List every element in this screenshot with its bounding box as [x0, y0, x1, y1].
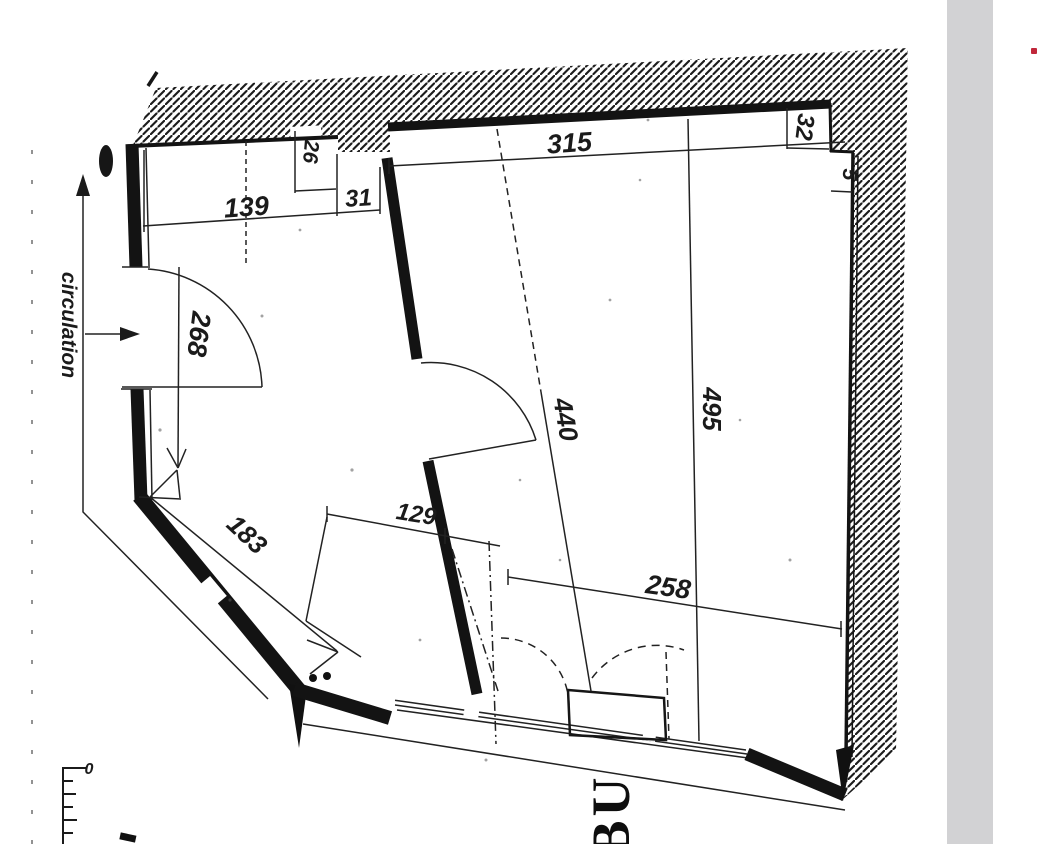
- scanner-gray-strip: [947, 0, 993, 844]
- dim-139-label: 139: [223, 190, 270, 223]
- dot-2: [323, 672, 331, 680]
- dim-268-label: 268: [181, 309, 216, 358]
- dim-495-label: 495: [697, 386, 727, 431]
- dim-5-label: 5: [837, 168, 861, 182]
- circulation-label: circulation: [57, 272, 80, 378]
- left-wall-upper: [132, 144, 136, 267]
- room-name-label: BU: [581, 773, 641, 844]
- dim-258-label: 258: [643, 569, 693, 605]
- scan-blob: [99, 145, 113, 177]
- dim-26-label: 26: [298, 138, 323, 165]
- red-mark: [1031, 48, 1037, 54]
- step-wall-vertical: [830, 103, 831, 152]
- scale-zero-label: 0: [85, 761, 94, 778]
- dim-315-label: 315: [546, 126, 594, 159]
- dot-1: [309, 674, 317, 682]
- floor-plan-scan: 139 31 26 315 32 5 268 440 495 129 183 2…: [0, 0, 1039, 844]
- step-wall-horizontal: [830, 151, 854, 152]
- left-wall-lower: [137, 389, 141, 500]
- dim-32-label: 32: [789, 112, 819, 142]
- dim-line-268: [178, 267, 179, 466]
- dim-31-label: 31: [344, 184, 373, 213]
